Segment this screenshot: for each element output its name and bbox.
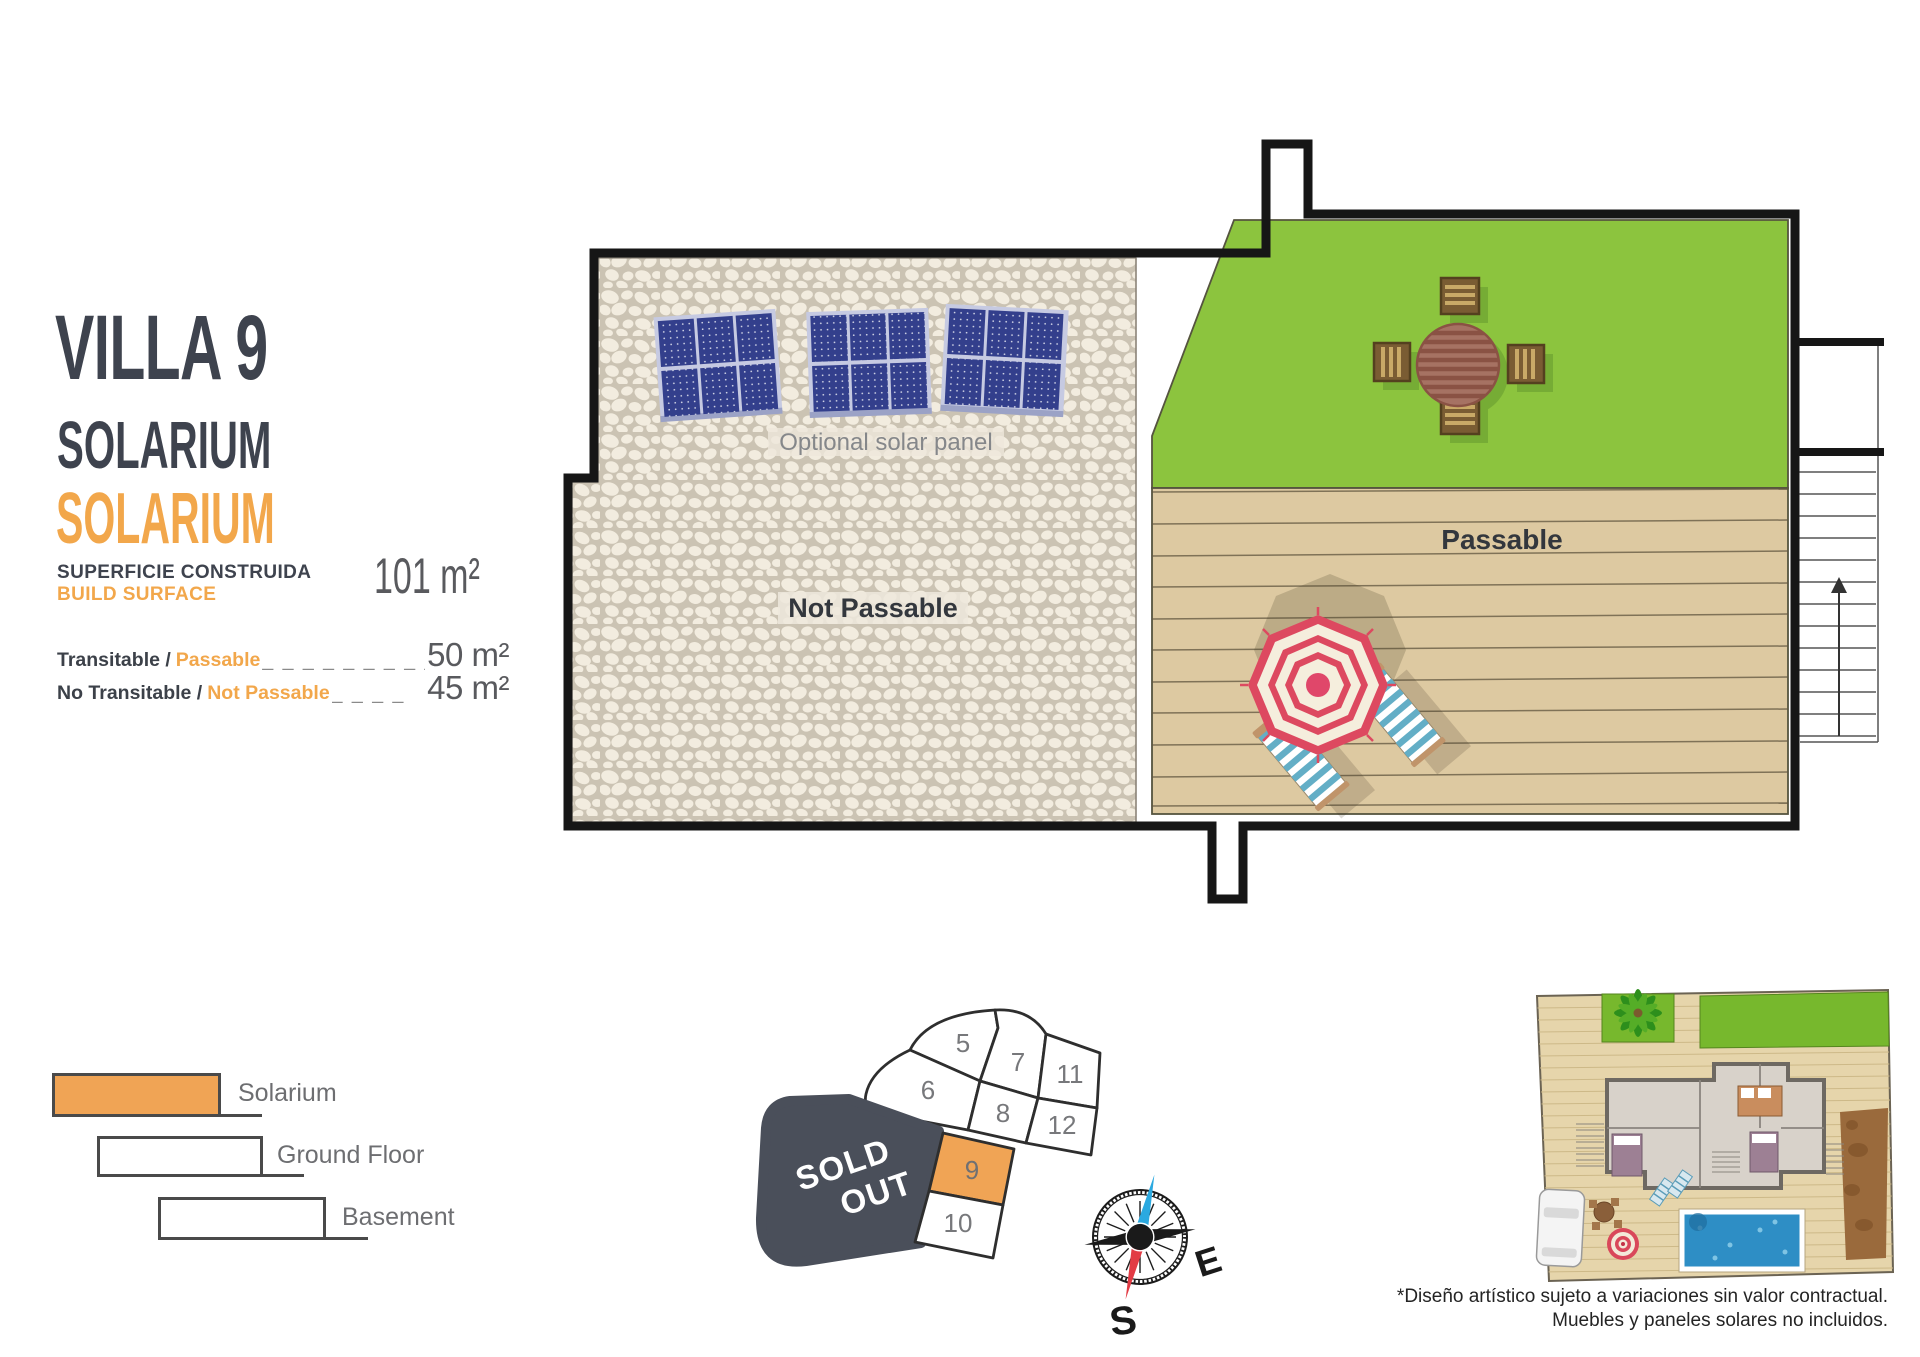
villa-title: VILLA 9 [55, 302, 268, 394]
surface-label-en: BUILD SURFACE [57, 584, 216, 606]
legend-swatch-solarium [52, 1073, 221, 1117]
optional-solar-label: Optional solar panel [779, 429, 992, 456]
disclaimer: *Diseño artístico sujeto a variaciones s… [1397, 1285, 1888, 1333]
surface-row-value: 45 m² [427, 669, 509, 707]
plot-12-number: 12 [1048, 1110, 1077, 1140]
mini-site-plan [1536, 989, 1893, 1281]
plot-11-number: 11 [1057, 1059, 1084, 1089]
page: Optional solar panel Not Passable Passab… [0, 0, 1920, 1357]
surface-row-not-passable: No Transitable / Not Passable _ _ _ _ 45… [57, 669, 509, 707]
legend-swatch-basement [158, 1197, 326, 1240]
mini-car [1536, 1189, 1585, 1267]
legend-label-basement: Basement [342, 1203, 455, 1232]
surface-row-highlight: Not Passable [207, 682, 329, 705]
floor-name-dark: SOLARIUM [57, 412, 271, 479]
mini-palm-tree [1614, 989, 1662, 1037]
stairs [1791, 342, 1884, 742]
compass-rose: E S [1083, 1173, 1226, 1345]
legend-line [323, 1237, 368, 1240]
legend-label-solarium: Solarium [238, 1079, 337, 1108]
mini-grass [1700, 992, 1889, 1048]
disclaimer-line-1: *Diseño artístico sujeto a variaciones s… [1397, 1285, 1888, 1309]
compass-east-label: E [1190, 1238, 1226, 1285]
plot-6-number: 6 [921, 1075, 935, 1105]
mini-pool [1679, 1209, 1805, 1272]
legend-label-ground-floor: Ground Floor [277, 1141, 424, 1170]
plot-5-number: 5 [956, 1028, 970, 1058]
compass-south-label: S [1107, 1297, 1140, 1344]
surface-label-es: SUPERFICIE CONSTRUIDA [57, 562, 311, 584]
mini-umbrella [1607, 1228, 1639, 1260]
floor-name-orange: SOLARIUM [56, 483, 275, 555]
mini-dirt-area [1840, 1108, 1888, 1260]
legend-line [260, 1174, 304, 1177]
dotted-leader: _ _ _ _ [332, 682, 425, 705]
plot-7-number: 7 [1011, 1047, 1025, 1077]
passable-label: Passable [1441, 524, 1562, 555]
disclaimer-line-2: Muebles y paneles solares no incluidos. [1397, 1309, 1888, 1333]
surface-row-label: No Transitable / [57, 682, 202, 705]
umbrella [1240, 607, 1396, 763]
not-passable-label: Not Passable [788, 593, 958, 623]
solarium-plan: Optional solar panel Not Passable Passab… [568, 144, 1884, 899]
plot-9-number: 9 [965, 1155, 979, 1185]
legend-line [218, 1114, 262, 1117]
plot-8-number: 8 [996, 1098, 1010, 1128]
solar-panels [654, 304, 1069, 422]
build-surface-value: 101 m² [374, 551, 480, 601]
legend-swatch-ground-floor [97, 1136, 263, 1177]
mini-house [1607, 1064, 1824, 1188]
plot-key-map: 5 6 7 8 11 12 9 10 SOLD OUT [761, 1010, 1100, 1262]
plot-10-number: 10 [944, 1208, 973, 1238]
